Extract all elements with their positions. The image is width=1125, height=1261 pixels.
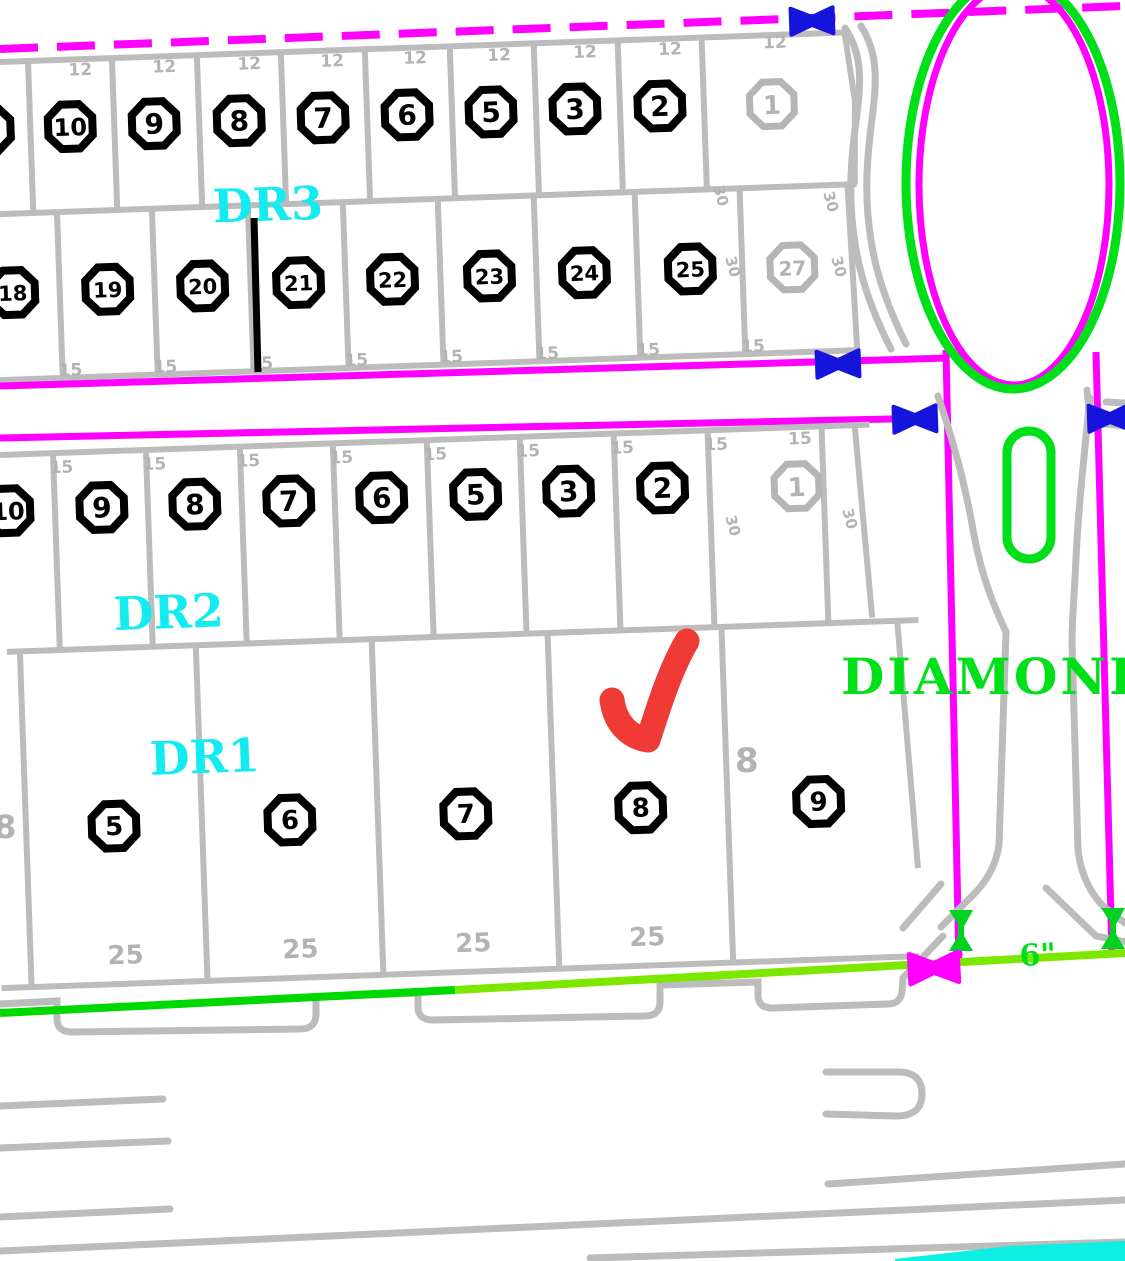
median-island [826, 1072, 922, 1116]
svg-text:27: 27 [778, 256, 807, 281]
lot-marker: 9 [131, 101, 177, 147]
frontage-labels: 25 25 25 25 [107, 922, 666, 971]
svg-text:22: 22 [378, 268, 408, 293]
svg-text:1: 1 [762, 91, 781, 122]
svg-text:12: 12 [763, 33, 787, 54]
lot-marker: 3 [552, 86, 598, 132]
lot-marker-gray: 27 [769, 244, 815, 290]
svg-text:15: 15 [58, 360, 82, 381]
lot-marker: 19 [85, 266, 131, 312]
bowtie-valve-icon [894, 405, 937, 432]
svg-text:2: 2 [652, 472, 673, 506]
svg-text:12: 12 [152, 57, 176, 78]
svg-text:25: 25 [282, 934, 319, 965]
lot-row-c-markers: 10 9 8 7 6 5 3 2 1 15 15 15 15 15 15 15 … [0, 428, 823, 645]
lot-marker: 8 [618, 785, 664, 831]
svg-text:15: 15 [49, 457, 73, 478]
svg-text:6: 6 [280, 806, 299, 837]
lot-marker: 5 [91, 803, 137, 849]
svg-text:30: 30 [827, 254, 850, 279]
svg-text:12: 12 [237, 54, 261, 75]
svg-text:8: 8 [631, 793, 650, 824]
svg-text:9: 9 [144, 107, 165, 141]
lot-marker: 9 [796, 779, 842, 825]
svg-text:1: 1 [787, 473, 806, 504]
svg-text:9: 9 [809, 787, 828, 818]
dimension-label: 8 [0, 808, 16, 846]
cul-de-sac-magenta-ellipse [919, 0, 1109, 385]
svg-text:10: 10 [0, 497, 25, 526]
svg-text:30: 30 [838, 506, 861, 531]
svg-text:30: 30 [709, 183, 732, 208]
svg-text:15: 15 [236, 451, 260, 472]
svg-text:19: 19 [93, 278, 123, 303]
street-label-dr1: DR1 [149, 728, 261, 786]
svg-text:21: 21 [284, 271, 314, 296]
svg-text:8: 8 [229, 104, 250, 138]
svg-text:15: 15 [788, 429, 812, 450]
black-annotation-line [254, 218, 258, 372]
plat-map-canvas[interactable]: 10 9 8 7 6 5 3 2 1 12 12 12 12 12 12 12 … [0, 0, 1125, 1261]
lot-marker: 6 [359, 475, 405, 521]
svg-text:15: 15 [636, 340, 660, 361]
green-stadium-symbol [1007, 431, 1051, 559]
lot-marker: 8 [172, 481, 218, 527]
svg-text:12: 12 [573, 42, 597, 63]
svg-text:6: 6 [371, 481, 392, 515]
bowtie-valve-icon [1089, 404, 1125, 431]
lot-marker: 5 [453, 471, 499, 517]
svg-text:5: 5 [465, 478, 486, 512]
svg-text:25: 25 [455, 928, 492, 959]
street-label-dr2: DR2 [113, 583, 225, 641]
svg-text:30: 30 [721, 513, 744, 538]
svg-text:12: 12 [403, 48, 427, 69]
svg-text:3: 3 [565, 93, 586, 127]
dimension-label: 8 [735, 741, 759, 781]
svg-text:30: 30 [819, 189, 842, 214]
lot-marker: 21 [276, 260, 322, 306]
lot-marker: 5 [468, 89, 514, 135]
lot-marker: 20 [180, 263, 226, 309]
bowtie-valve-icon [817, 350, 860, 377]
lot-marker: 25 [667, 246, 713, 292]
lot-marker: 7 [443, 791, 489, 837]
magenta-bowtie-valve-icon [909, 952, 959, 984]
svg-text:7: 7 [278, 485, 299, 519]
svg-text:15: 15 [423, 444, 447, 465]
svg-text:15: 15 [344, 350, 368, 371]
svg-text:15: 15 [704, 435, 728, 456]
svg-text:5: 5 [105, 812, 124, 843]
svg-text:12: 12 [658, 39, 682, 60]
svg-text:24: 24 [569, 261, 599, 286]
street-label-dr3: DR3 [212, 176, 324, 234]
lot-marker: 24 [561, 250, 607, 296]
svg-text:7: 7 [313, 101, 334, 135]
svg-text:12: 12 [487, 45, 511, 66]
svg-text:25: 25 [629, 922, 666, 953]
lot-marker: 7 [266, 478, 312, 524]
svg-text:15: 15 [153, 357, 177, 378]
svg-text:2: 2 [650, 90, 671, 124]
pipe-size-label: 6" [1019, 937, 1057, 974]
lot-marker: 3 [546, 468, 592, 514]
lot-marker: 6 [384, 92, 430, 138]
lot-marker: 7 [300, 95, 346, 141]
svg-text:8: 8 [185, 488, 206, 522]
bowtie-valve-icon [791, 7, 834, 34]
svg-text:12: 12 [68, 60, 92, 81]
lot-marker: 23 [466, 253, 512, 299]
svg-text:3: 3 [558, 475, 579, 509]
lot-marker: 6 [267, 797, 313, 843]
svg-text:6: 6 [397, 98, 418, 132]
svg-text:18: 18 [0, 281, 28, 306]
svg-text:15: 15 [329, 448, 353, 469]
lot-marker: 2 [637, 83, 683, 129]
svg-text:15: 15 [439, 347, 463, 368]
svg-text:25: 25 [675, 257, 705, 282]
svg-text:12: 12 [320, 51, 344, 72]
svg-text:20: 20 [188, 274, 218, 299]
svg-text:15: 15 [516, 441, 540, 462]
lot-marker [0, 106, 11, 152]
lot-marker: 8 [216, 98, 262, 144]
red-checkmark-annotation [612, 641, 687, 740]
svg-text:5: 5 [481, 96, 502, 130]
lot-marker: 10 [0, 488, 31, 534]
svg-text:15: 15 [610, 438, 634, 459]
svg-text:15: 15 [535, 344, 559, 365]
street-label-diamond: DIAMOND [841, 647, 1125, 706]
lot-marker: 10 [47, 104, 93, 150]
svg-text:9: 9 [92, 491, 113, 525]
svg-text:23: 23 [474, 264, 504, 289]
lot-marker-gray: 1 [749, 81, 795, 127]
svg-text:15: 15 [142, 454, 166, 475]
svg-text:7: 7 [456, 800, 475, 831]
svg-text:15: 15 [741, 336, 765, 357]
green-service-line [0, 990, 455, 1013]
lot-marker: 18 [0, 270, 36, 316]
lot-marker: 9 [79, 485, 125, 531]
lot-marker: 2 [640, 465, 686, 511]
svg-text:10: 10 [53, 113, 87, 142]
svg-text:25: 25 [107, 940, 144, 971]
lot-marker: 22 [370, 256, 416, 302]
lot-marker-gray: 1 [774, 463, 820, 509]
